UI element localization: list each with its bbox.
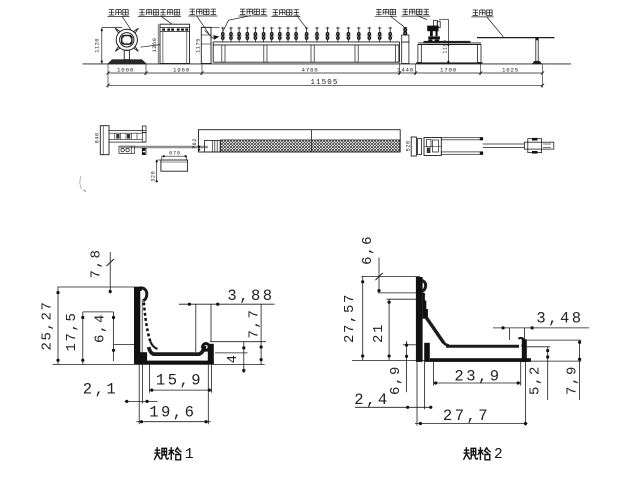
svg-text:1175: 1175: [195, 38, 201, 53]
svg-text:1625: 1625: [502, 67, 519, 74]
svg-text:1960: 1960: [173, 67, 190, 74]
svg-text:7,9: 7,9: [565, 365, 581, 395]
svg-text:21: 21: [371, 323, 387, 343]
svg-text:2,4: 2,4: [354, 391, 389, 409]
svg-text:25,27: 25,27: [40, 300, 56, 350]
svg-text:1150: 1150: [442, 40, 448, 54]
svg-text:3,88: 3,88: [227, 287, 274, 305]
svg-text:27,57: 27,57: [342, 293, 358, 343]
svg-text:1120: 1120: [95, 38, 101, 53]
svg-text:11505: 11505: [310, 79, 338, 87]
svg-text:520: 520: [406, 140, 412, 151]
svg-text:6,9: 6,9: [388, 365, 404, 395]
svg-text:2,1: 2,1: [83, 380, 118, 398]
svg-text:7,7: 7,7: [247, 308, 263, 338]
svg-text:4780: 4780: [301, 67, 318, 74]
svg-text:5,2: 5,2: [528, 365, 544, 395]
svg-text:6,4: 6,4: [93, 313, 109, 343]
svg-text:4: 4: [225, 353, 241, 363]
svg-text:840: 840: [94, 132, 100, 143]
svg-text:1000: 1000: [117, 67, 134, 74]
svg-text:7,8: 7,8: [89, 248, 105, 278]
svg-text:27,7: 27,7: [443, 407, 490, 425]
svg-text:3,48: 3,48: [536, 309, 583, 327]
svg-text:17,5: 17,5: [64, 311, 80, 351]
svg-text:1: 1: [185, 447, 194, 463]
svg-text:670: 670: [169, 151, 181, 157]
svg-text:1700: 1700: [440, 67, 457, 74]
svg-text:320: 320: [151, 171, 157, 182]
svg-text:1440: 1440: [397, 67, 414, 74]
svg-text:2: 2: [494, 447, 503, 463]
svg-text:19,6: 19,6: [149, 403, 196, 421]
svg-text:23,9: 23,9: [454, 367, 501, 385]
svg-text:6,6: 6,6: [360, 235, 376, 265]
svg-text:15,9: 15,9: [156, 371, 203, 389]
svg-text:762: 762: [192, 138, 198, 149]
